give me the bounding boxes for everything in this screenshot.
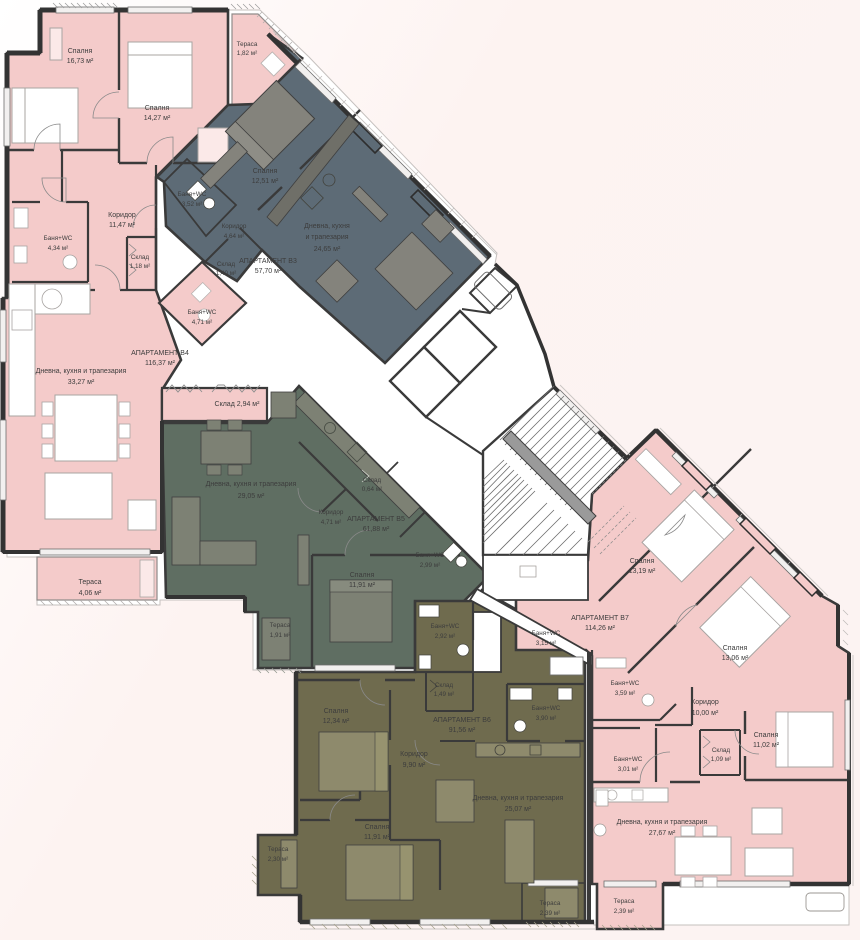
svg-text:Спалня: Спалня [145, 105, 170, 112]
svg-text:Баня+WC: Баня+WC [44, 235, 73, 242]
svg-text:13,19 м²: 13,19 м² [629, 568, 656, 575]
svg-text:Спалня: Спалня [723, 645, 748, 652]
svg-text:1,82 м²: 1,82 м² [237, 50, 257, 57]
svg-text:Баня+WC: Баня+WC [178, 191, 207, 198]
svg-text:Тераса: Тераса [270, 622, 291, 629]
svg-text:9,90 м²: 9,90 м² [403, 762, 426, 769]
svg-text:Спалня: Спалня [630, 558, 655, 565]
svg-text:Склад: Склад [712, 747, 731, 754]
svg-text:Тераса: Тераса [540, 900, 561, 907]
svg-text:11,47 м²: 11,47 м² [109, 222, 136, 229]
svg-text:1,40 м²: 1,40 м² [216, 270, 236, 277]
svg-text:Баня+WC: Баня+WC [532, 630, 561, 637]
svg-text:Склад 2,94 м²: Склад 2,94 м² [215, 401, 261, 408]
svg-text:12,34 м²: 12,34 м² [323, 718, 350, 725]
svg-text:4,64 м²: 4,64 м² [224, 233, 244, 240]
svg-text:Коридор: Коридор [222, 223, 247, 230]
svg-text:АПАРТАМЕНТ В5: АПАРТАМЕНТ В5 [347, 516, 405, 523]
svg-text:2,39 м²: 2,39 м² [614, 908, 634, 915]
svg-text:4,71 м²: 4,71 м² [321, 519, 341, 526]
svg-text:Баня+WC: Баня+WC [416, 552, 445, 559]
svg-text:АПАРТАМЕНТ В3: АПАРТАМЕНТ В3 [239, 258, 297, 265]
svg-text:61,88 м²: 61,88 м² [363, 526, 390, 533]
svg-text:2,92 м²: 2,92 м² [435, 633, 455, 640]
svg-text:11,91 м²: 11,91 м² [364, 834, 391, 841]
svg-text:3,15 м²: 3,15 м² [536, 640, 556, 647]
svg-text:Коридор: Коридор [319, 509, 344, 516]
svg-text:АПАРТАМЕНТ В4: АПАРТАМЕНТ В4 [131, 350, 189, 357]
svg-text:Спалня: Спалня [253, 168, 278, 175]
svg-text:116,37 м²: 116,37 м² [145, 360, 176, 367]
svg-text:АПАРТАМЕНТ В7: АПАРТАМЕНТ В7 [571, 615, 629, 622]
svg-text:4,06 м²: 4,06 м² [79, 590, 102, 597]
svg-text:Дневна, кухня и трапезария: Дневна, кухня и трапезария [206, 481, 297, 488]
svg-text:3,52 м²: 3,52 м² [182, 201, 202, 208]
svg-text:Тераса: Тераса [237, 41, 258, 48]
svg-text:114,26 м²: 114,26 м² [585, 625, 616, 632]
svg-text:14,27 м²: 14,27 м² [144, 115, 171, 122]
svg-text:Тераса: Тераса [614, 898, 635, 905]
svg-text:Баня+WC: Баня+WC [431, 623, 460, 630]
svg-text:3,01 м²: 3,01 м² [618, 766, 638, 773]
svg-text:Дневна, кухня: Дневна, кухня [304, 223, 350, 230]
svg-text:Баня+WC: Баня+WC [614, 756, 643, 763]
svg-text:Коридор: Коридор [400, 751, 428, 758]
svg-text:1,18 м²: 1,18 м² [130, 263, 150, 270]
svg-text:11,91 м²: 11,91 м² [349, 582, 376, 589]
svg-text:Спалня: Спалня [350, 572, 375, 579]
svg-text:11,02 м²: 11,02 м² [753, 742, 780, 749]
svg-text:33,27 м²: 33,27 м² [68, 379, 95, 386]
svg-text:27,67 м²: 27,67 м² [649, 830, 676, 837]
svg-text:Склад: Склад [217, 261, 236, 268]
svg-text:10,00 м²: 10,00 м² [692, 710, 719, 717]
svg-text:Спалня: Спалня [68, 48, 93, 55]
svg-text:3,90 м²: 3,90 м² [536, 715, 556, 722]
svg-text:1,49 м²: 1,49 м² [434, 691, 454, 698]
svg-text:Склад: Склад [131, 254, 150, 261]
svg-text:Склад: Склад [363, 477, 382, 484]
svg-text:0,64 м²: 0,64 м² [362, 486, 382, 493]
svg-text:2,39 м²: 2,39 м² [540, 910, 560, 917]
svg-text:16,73 м²: 16,73 м² [67, 58, 94, 65]
svg-text:Дневна, кухня и трапезария: Дневна, кухня и трапезария [36, 368, 127, 375]
svg-text:24,65 м²: 24,65 м² [314, 246, 341, 253]
svg-text:Спалня: Спалня [754, 732, 779, 739]
svg-text:4,34 м²: 4,34 м² [48, 245, 68, 252]
svg-text:4,71 м²: 4,71 м² [192, 319, 212, 326]
svg-text:2,99 м²: 2,99 м² [420, 562, 440, 569]
svg-text:25,07 м²: 25,07 м² [505, 806, 532, 813]
svg-text:1,09 м²: 1,09 м² [711, 756, 731, 763]
svg-text:Спалня: Спалня [365, 824, 390, 831]
svg-text:12,51 м²: 12,51 м² [252, 178, 279, 185]
svg-text:Тераса: Тераса [79, 579, 102, 586]
svg-text:Спалня: Спалня [324, 708, 349, 715]
svg-text:57,70 м²: 57,70 м² [255, 268, 282, 275]
svg-text:1,91 м²: 1,91 м² [270, 632, 290, 639]
svg-text:91,56 м²: 91,56 м² [449, 727, 476, 734]
svg-text:2,30 м²: 2,30 м² [268, 856, 288, 863]
svg-text:Дневна, кухня и трапезария: Дневна, кухня и трапезария [617, 819, 708, 826]
svg-text:и трапезария: и трапезария [305, 234, 348, 241]
svg-text:3,59 м²: 3,59 м² [615, 690, 635, 697]
svg-text:Тераса: Тераса [268, 846, 289, 853]
svg-text:Коридор: Коридор [691, 699, 719, 706]
svg-text:Баня+WC: Баня+WC [188, 309, 217, 316]
svg-text:29,05 м²: 29,05 м² [238, 493, 265, 500]
svg-text:13,06 м²: 13,06 м² [722, 655, 749, 662]
svg-text:Баня+WC: Баня+WC [532, 705, 561, 712]
svg-text:Склад: Склад [435, 682, 454, 689]
svg-text:Баня+WC: Баня+WC [611, 680, 640, 687]
svg-text:АПАРТАМЕНТ В6: АПАРТАМЕНТ В6 [433, 717, 491, 724]
svg-text:Коридор: Коридор [108, 212, 136, 219]
svg-text:Дневна, кухня и трапезария: Дневна, кухня и трапезария [473, 795, 564, 802]
